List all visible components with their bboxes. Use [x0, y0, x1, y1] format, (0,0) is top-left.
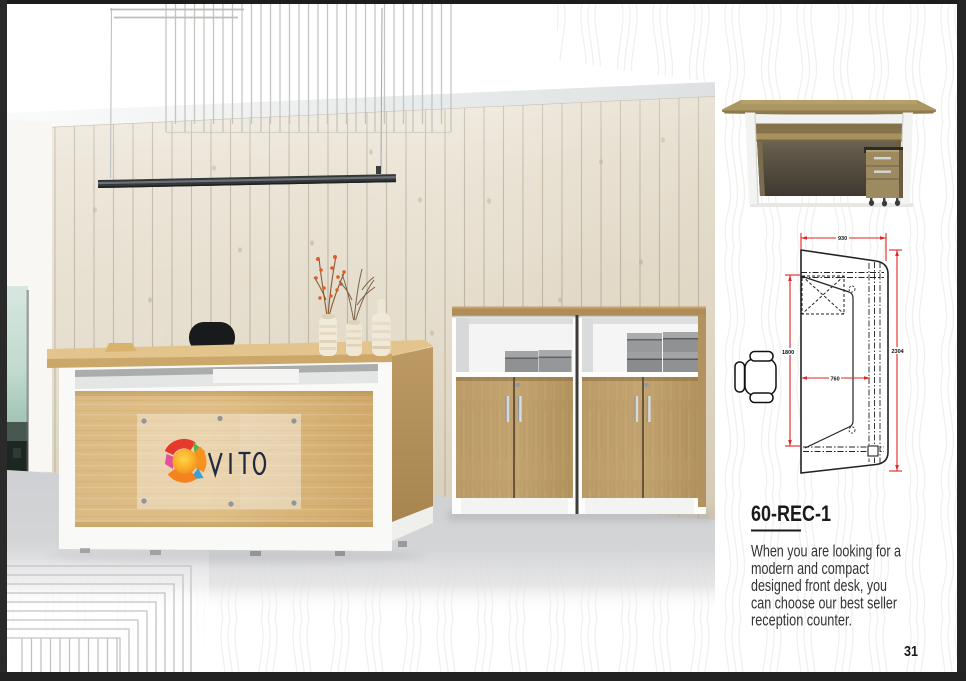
svg-text:31: 31	[904, 643, 918, 660]
svg-text:reception counter.: reception counter.	[751, 612, 852, 630]
svg-text:1800: 1800	[782, 350, 794, 356]
svg-text:930: 930	[838, 236, 847, 242]
svg-text:can choose our best seller: can choose our best seller	[751, 594, 897, 612]
svg-text:modern and compact: modern and compact	[751, 560, 869, 578]
svg-text:60-REC-1: 60-REC-1	[751, 501, 831, 526]
svg-text:When you are looking for a: When you are looking for a	[751, 543, 901, 561]
svg-text:designed front desk, you: designed front desk, you	[751, 577, 887, 595]
svg-text:760: 760	[831, 376, 840, 382]
svg-text:2304: 2304	[892, 349, 905, 355]
